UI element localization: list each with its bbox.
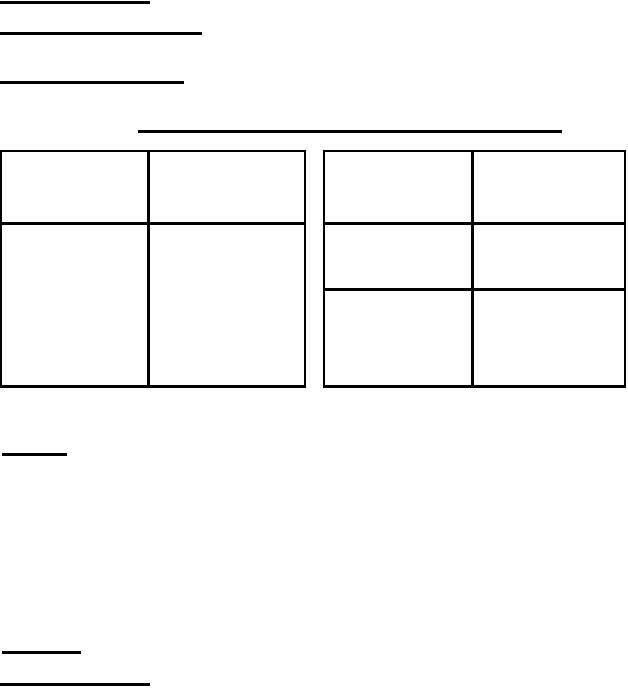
header-blank-underline-3 <box>0 81 184 84</box>
left-table-cell-r1c2 <box>150 152 304 222</box>
left-table-cell-r2c2 <box>150 225 304 385</box>
footer-blank-underline-2 <box>0 683 150 686</box>
right-table-cell-r1c1 <box>325 152 471 222</box>
section-blank-underline <box>2 453 67 456</box>
left-table <box>0 150 306 388</box>
header-blank-underline-1 <box>0 1 150 4</box>
right-table <box>323 150 626 388</box>
right-table-cell-r2c1 <box>325 225 471 288</box>
left-table-cell-r2c1 <box>2 225 147 385</box>
footer-blank-underline-1 <box>2 651 81 654</box>
left-table-cell-r1c1 <box>2 152 147 222</box>
right-table-cell-r3c1 <box>325 291 471 385</box>
right-table-cell-r1c2 <box>474 152 624 222</box>
title-underline <box>138 130 562 133</box>
right-table-cell-r2c2 <box>474 225 624 288</box>
document-page: { "page": { "background_color": "#ffffff… <box>0 0 628 688</box>
right-table-cell-r3c2 <box>474 291 624 385</box>
header-blank-underline-2 <box>0 32 202 35</box>
